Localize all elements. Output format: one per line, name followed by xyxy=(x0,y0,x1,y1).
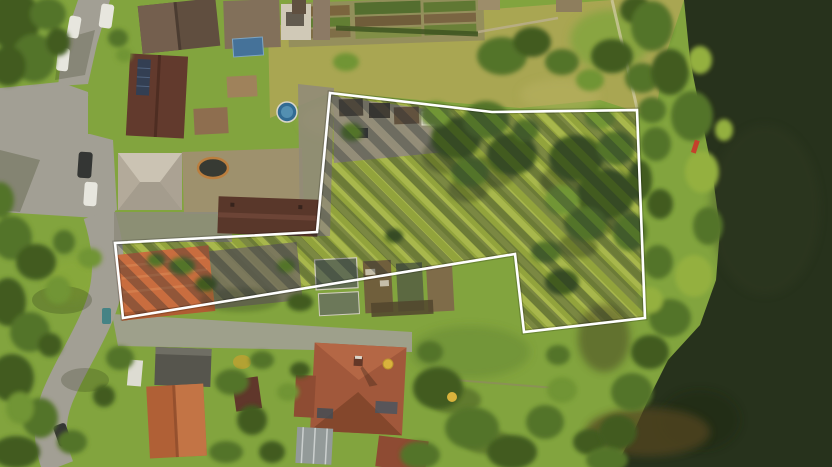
aerial-photo xyxy=(0,0,832,467)
screenshot-root xyxy=(0,0,832,467)
